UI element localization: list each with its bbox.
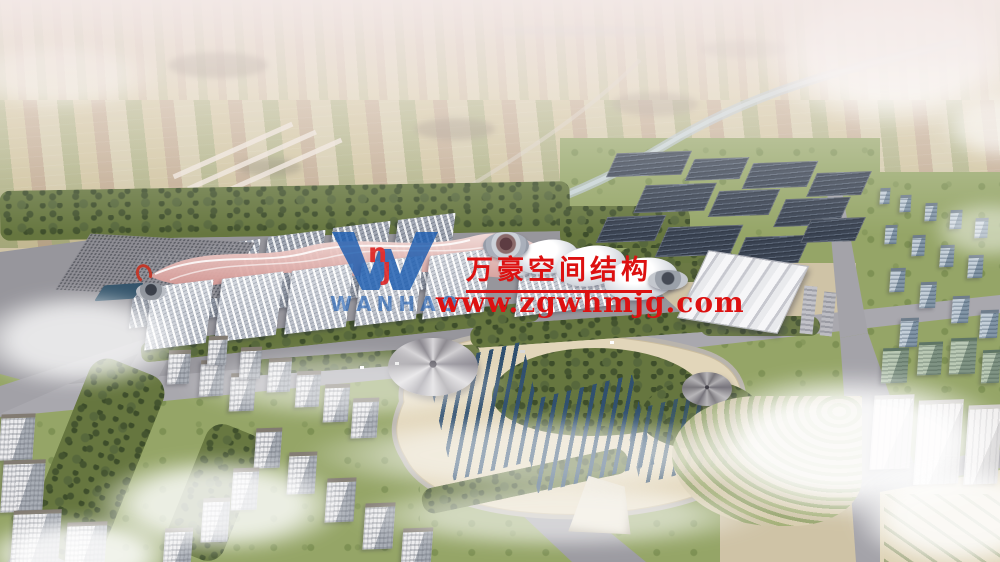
building-block: [207, 336, 228, 366]
building-block: [0, 459, 46, 513]
watermark-website: www.zgwhmjg.com: [436, 286, 745, 319]
cloud: [350, 480, 770, 550]
exhibition-hall: [214, 271, 283, 342]
building-block: [911, 235, 925, 257]
building-block-green: [981, 350, 1000, 384]
wanhao-logo-icon: n J: [328, 228, 454, 294]
car: [610, 341, 614, 344]
building-block: [899, 318, 919, 348]
aerial-exhibition-center-render: n J WANHAO 万豪空间结构 www.zgwhmjg.com: [0, 0, 1000, 562]
building-block: [951, 296, 970, 324]
car: [520, 350, 525, 353]
logo-monogram-j: J: [380, 257, 391, 286]
building-block: [889, 268, 906, 293]
cloud: [185, 350, 515, 420]
building-block: [899, 195, 911, 212]
building-block: [884, 225, 897, 244]
building-block-green: [949, 337, 978, 374]
building-block: [879, 188, 890, 204]
building-block-green: [917, 342, 943, 376]
building-block: [919, 282, 937, 309]
building-block: [979, 310, 999, 339]
building-block: [0, 413, 36, 460]
